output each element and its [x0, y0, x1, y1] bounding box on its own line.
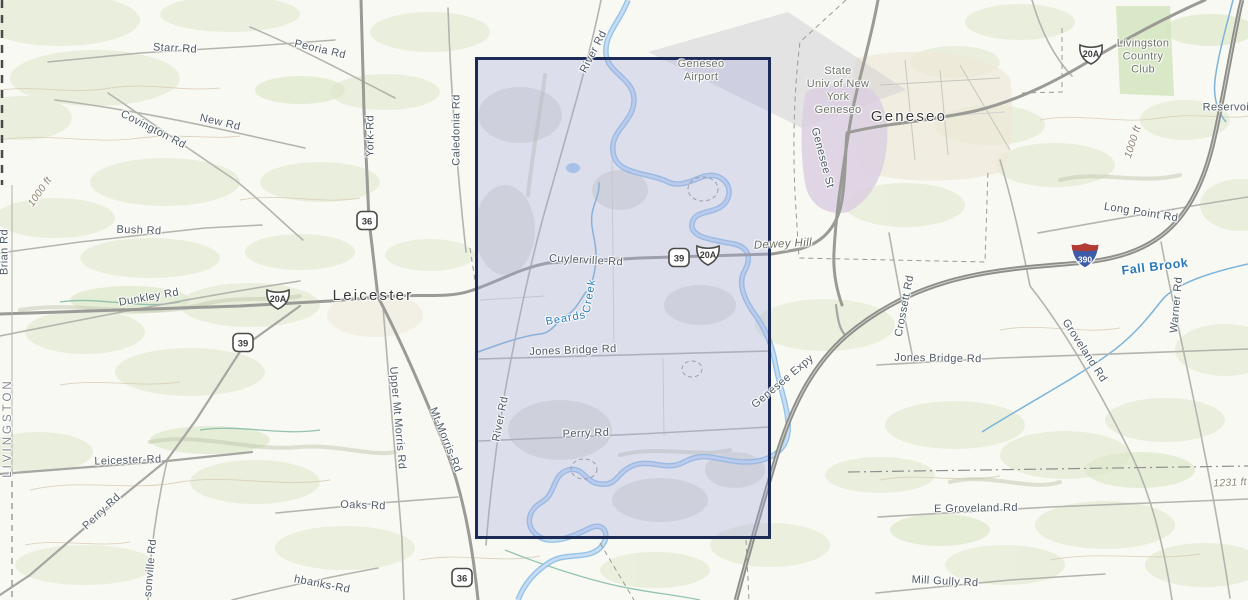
map-canvas[interactable]: 3620A393920A20A39036 Starr RdPeoria RdNe… — [0, 0, 1248, 600]
selection-rectangle[interactable] — [475, 57, 771, 539]
